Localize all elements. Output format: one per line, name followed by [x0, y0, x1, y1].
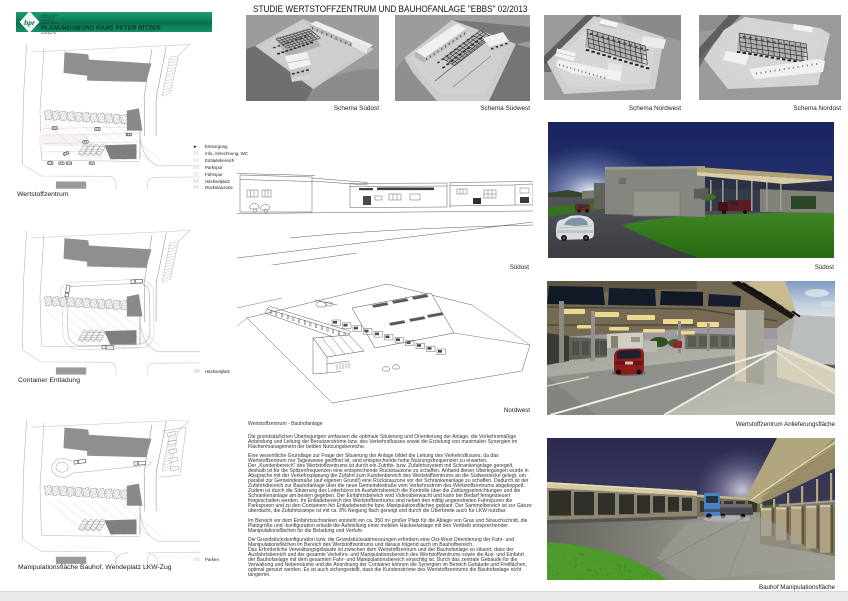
- svg-text:hpr: hpr: [24, 18, 35, 27]
